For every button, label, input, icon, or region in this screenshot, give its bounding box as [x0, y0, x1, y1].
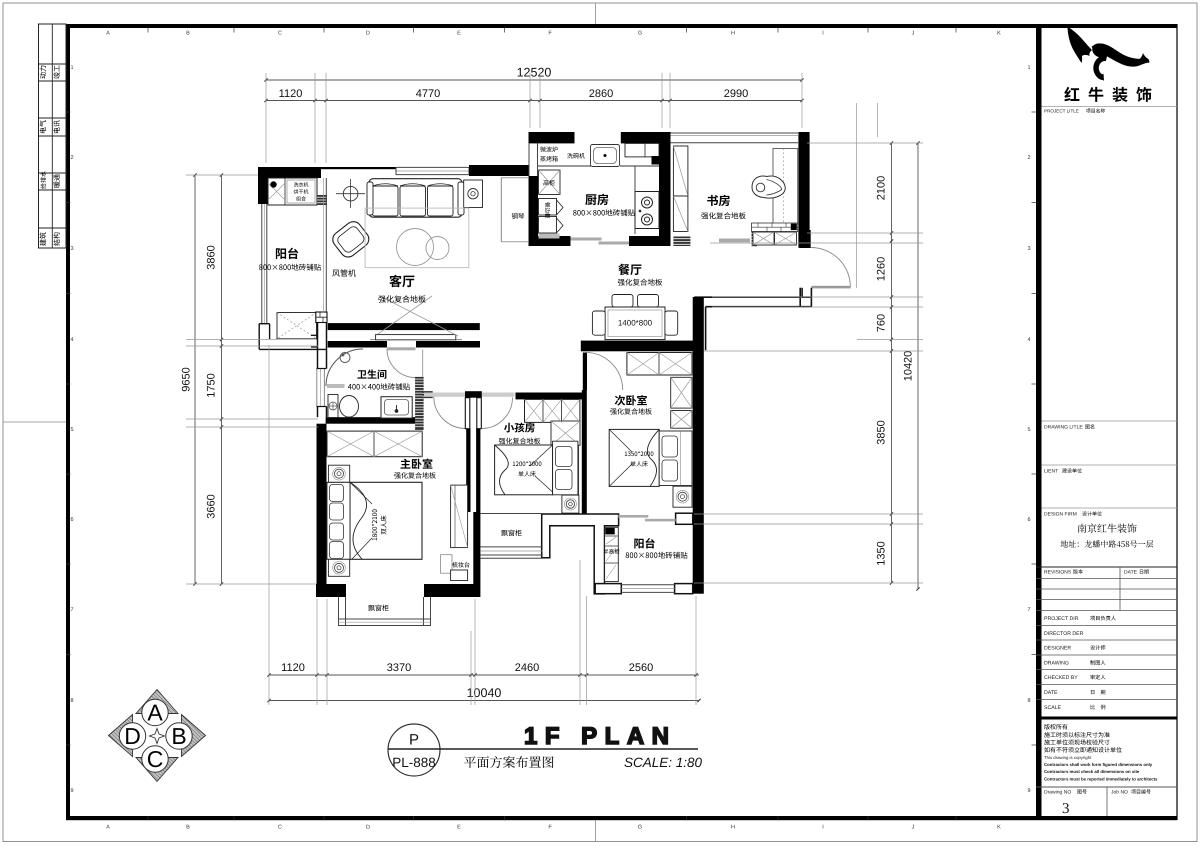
svg-text:Contractors shall work form fi: Contractors shall work form figured dime… — [1044, 762, 1153, 767]
svg-text:D: D — [366, 31, 370, 37]
svg-text:3370: 3370 — [387, 662, 411, 674]
svg-text:A: A — [106, 825, 110, 831]
svg-text:10040: 10040 — [467, 686, 502, 700]
svg-text:LIENT: LIENT — [1044, 469, 1058, 475]
svg-text:I: I — [822, 825, 824, 831]
svg-text:1120: 1120 — [279, 88, 303, 100]
svg-text:D: D — [366, 825, 370, 831]
svg-text:4: 4 — [71, 337, 74, 343]
svg-text:Contractors must be reported i: Contractors must be reported immediately… — [1044, 777, 1158, 782]
svg-text:H: H — [731, 825, 735, 831]
svg-text:I: I — [822, 31, 824, 37]
svg-text:PROJECT LITLE: PROJECT LITLE — [1044, 109, 1079, 114]
svg-text:K: K — [997, 825, 1001, 831]
svg-text:DRAWING: DRAWING — [1044, 661, 1069, 667]
svg-text:8: 8 — [1027, 698, 1030, 704]
svg-text:2460: 2460 — [515, 662, 539, 674]
svg-text:7: 7 — [71, 607, 74, 613]
svg-text:12520: 12520 — [517, 66, 552, 80]
svg-text:H: H — [731, 31, 735, 37]
svg-text:P: P — [409, 732, 419, 749]
svg-text:2: 2 — [71, 155, 74, 161]
svg-text:B: B — [186, 825, 190, 831]
svg-text:J: J — [912, 825, 915, 831]
svg-text:9: 9 — [1027, 788, 1030, 794]
svg-text:2100: 2100 — [876, 176, 888, 200]
svg-text:C: C — [147, 746, 164, 772]
svg-text:5: 5 — [1027, 427, 1030, 433]
svg-text:DESIGNER: DESIGNER — [1044, 646, 1071, 652]
svg-text:Drawing NO: Drawing NO — [1044, 790, 1071, 796]
svg-text:E: E — [457, 825, 461, 831]
svg-text:F: F — [548, 31, 552, 37]
svg-text:A: A — [147, 700, 163, 726]
svg-text:1400*800: 1400*800 — [618, 319, 653, 328]
svg-text:2: 2 — [1027, 155, 1030, 161]
svg-text:C: C — [278, 31, 282, 37]
svg-text:PROJECT DIR: PROJECT DIR — [1044, 616, 1079, 622]
svg-text:CHECKED BY: CHECKED BY — [1044, 675, 1078, 681]
svg-text:1350: 1350 — [876, 541, 888, 565]
svg-text:7: 7 — [1027, 607, 1030, 613]
svg-text:B: B — [171, 723, 186, 749]
svg-text:1: 1 — [71, 65, 74, 71]
svg-text:4: 4 — [1027, 337, 1030, 343]
svg-text:6: 6 — [1027, 517, 1030, 523]
svg-text:F: F — [548, 825, 552, 831]
svg-text:DATE: DATE — [1124, 570, 1138, 576]
svg-text:2560: 2560 — [629, 662, 653, 674]
svg-text:REVISIONS: REVISIONS — [1044, 570, 1072, 576]
svg-text:DATE: DATE — [1044, 690, 1058, 696]
svg-text:A: A — [106, 31, 110, 37]
svg-text:D: D — [124, 723, 141, 749]
svg-text:2860: 2860 — [589, 88, 613, 100]
svg-text:K: K — [997, 31, 1001, 37]
svg-text:DESIGN FIRM: DESIGN FIRM — [1044, 512, 1077, 518]
svg-text:3860: 3860 — [206, 245, 218, 269]
svg-text:1750: 1750 — [206, 373, 218, 397]
svg-text:3: 3 — [1062, 801, 1070, 817]
svg-text:8: 8 — [71, 698, 74, 704]
svg-text:4770: 4770 — [416, 88, 440, 100]
svg-text:2990: 2990 — [724, 88, 748, 100]
svg-text:6: 6 — [71, 517, 74, 523]
svg-text:1F PLAN: 1F PLAN — [524, 723, 677, 750]
svg-text:9650: 9650 — [181, 367, 193, 391]
svg-text:G: G — [638, 825, 642, 831]
svg-text:B: B — [186, 31, 190, 37]
svg-text:Job NO: Job NO — [1111, 790, 1128, 796]
svg-text:C: C — [278, 825, 282, 831]
svg-text:1120: 1120 — [281, 662, 305, 674]
svg-text:G: G — [638, 31, 642, 37]
svg-text:760: 760 — [876, 314, 888, 332]
svg-text:Contractors must check all dim: Contractors must check all dimensions on… — [1044, 769, 1140, 774]
svg-text:9: 9 — [71, 788, 74, 794]
svg-text:DIRECTOR DER: DIRECTOR DER — [1044, 631, 1084, 637]
svg-text:1260: 1260 — [876, 257, 888, 281]
svg-text:3660: 3660 — [206, 494, 218, 518]
svg-text:This drawing is copyright: This drawing is copyright — [1044, 755, 1092, 760]
svg-text:1: 1 — [1027, 65, 1030, 71]
svg-text:SCALE: 1:80: SCALE: 1:80 — [624, 755, 703, 770]
svg-text:3: 3 — [71, 246, 74, 252]
svg-text:3850: 3850 — [876, 420, 888, 444]
svg-text:5: 5 — [71, 427, 74, 433]
svg-text:PL-888: PL-888 — [392, 755, 436, 770]
svg-text:J: J — [912, 31, 915, 37]
svg-text:SCALE: SCALE — [1044, 705, 1062, 711]
svg-text:DRAWING LITLE: DRAWING LITLE — [1044, 425, 1083, 431]
svg-text:3: 3 — [1027, 246, 1030, 252]
svg-text:10420: 10420 — [903, 351, 915, 382]
svg-text:E: E — [457, 31, 461, 37]
